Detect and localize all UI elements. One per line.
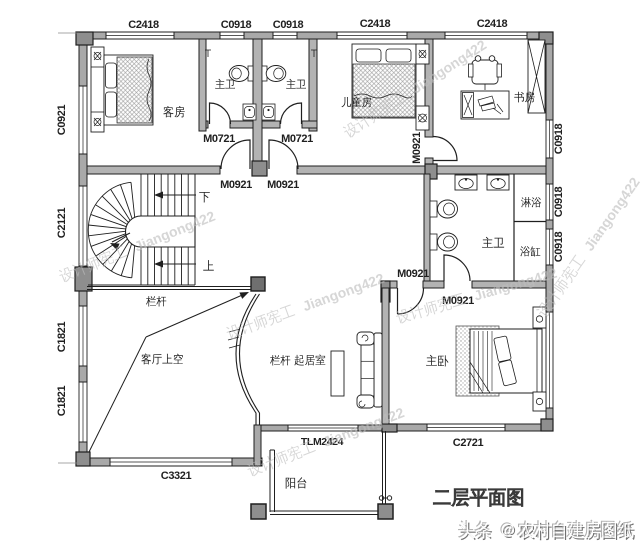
svg-text:C2721: C2721 xyxy=(453,437,484,449)
svg-text:M0721: M0721 xyxy=(203,133,235,145)
svg-text:C2418: C2418 xyxy=(128,19,159,31)
svg-text:C0918: C0918 xyxy=(553,232,565,263)
svg-text:M0921: M0921 xyxy=(411,132,423,164)
svg-text:C2121: C2121 xyxy=(56,208,68,239)
svg-text:M0921: M0921 xyxy=(267,179,299,191)
svg-text:M0921: M0921 xyxy=(220,179,252,191)
svg-text:M0921: M0921 xyxy=(397,268,429,280)
svg-text:C0918: C0918 xyxy=(221,19,252,31)
svg-text:C3321: C3321 xyxy=(161,470,192,482)
svg-text:C0918: C0918 xyxy=(553,187,565,218)
svg-text:C1821: C1821 xyxy=(56,386,68,417)
svg-text:C0918: C0918 xyxy=(273,19,304,31)
svg-text:C2418: C2418 xyxy=(360,18,391,30)
svg-text:C0918: C0918 xyxy=(553,124,565,155)
svg-text:C2418: C2418 xyxy=(477,18,508,30)
svg-text:M0721: M0721 xyxy=(281,133,313,145)
svg-text:C0921: C0921 xyxy=(56,105,68,136)
svg-text:C1821: C1821 xyxy=(56,322,68,353)
